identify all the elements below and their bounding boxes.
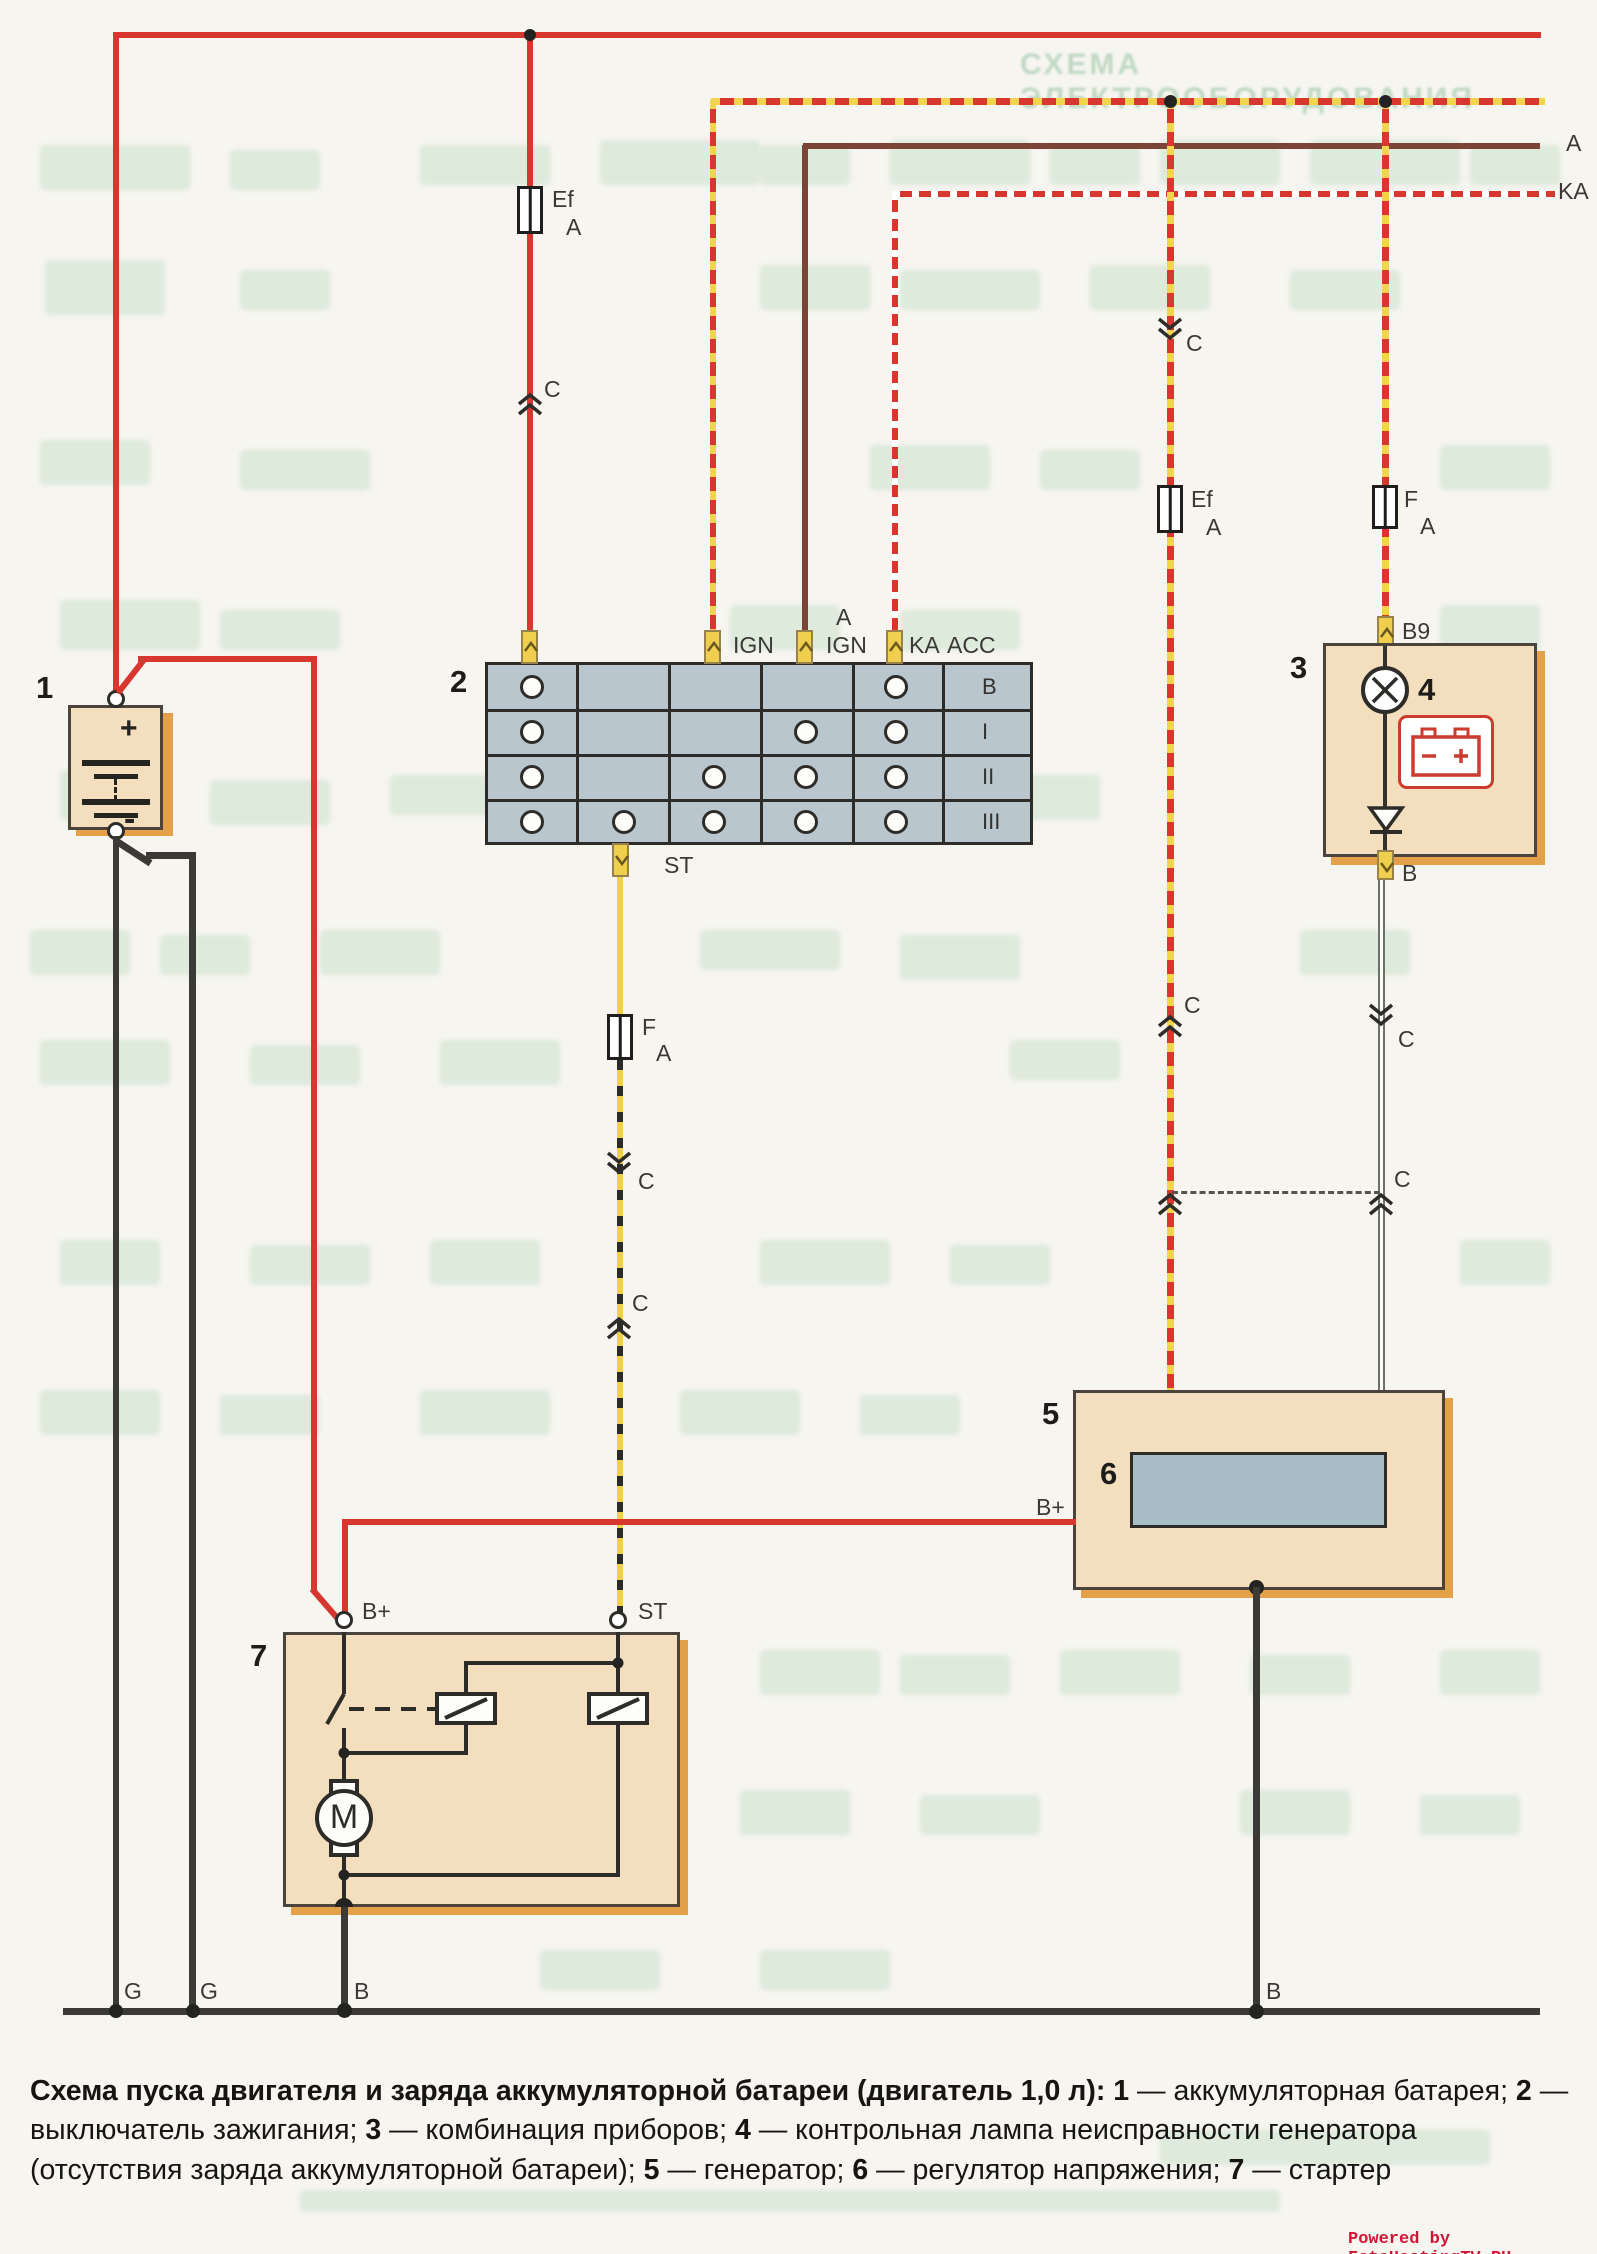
connector-chevron-icon — [1367, 1192, 1395, 1218]
connector-link-dashed — [1172, 1191, 1380, 1194]
connector-c-label: C — [1394, 1166, 1411, 1193]
fuse-ef-icon — [517, 186, 543, 234]
wire-label-ka: KA — [1558, 178, 1589, 205]
connector-c-label: C — [1186, 330, 1203, 357]
terminal-label-ign2: IGN — [826, 632, 867, 659]
switch-contact — [520, 720, 544, 744]
starter-motor-label: M — [324, 1798, 364, 1837]
wire-battery-to-starter — [311, 656, 317, 1590]
wiring-diagram-page: СХЕМА ЭЛЕКТРООБОРУДОВАНИЯ A KA 1 + - Ef … — [0, 0, 1597, 2254]
wire-battery-branch-horizontal — [138, 656, 317, 662]
battery-plate — [82, 799, 150, 805]
cluster-number: 3 — [1290, 650, 1307, 686]
fuse-f2-label: F — [1404, 486, 1418, 513]
starter-terminal-st — [609, 1611, 627, 1629]
switch-terminal-b — [521, 630, 538, 664]
junction-dot — [1249, 2004, 1264, 2019]
generator-number: 5 — [1042, 1396, 1059, 1432]
switch-contact — [884, 675, 908, 699]
wire-ground-1 — [113, 836, 119, 2012]
battery-minus-sign: - — [124, 800, 135, 839]
lamp-number: 4 — [1418, 672, 1435, 708]
switch-contact — [520, 810, 544, 834]
starter-st-label: ST — [638, 1598, 667, 1625]
terminal-label-acc: ACC — [947, 632, 996, 659]
wire-bplus-feed — [344, 1519, 1076, 1525]
switch-contact — [794, 810, 818, 834]
switch-contact — [520, 765, 544, 789]
terminal-label-b: B — [1402, 860, 1417, 887]
junction-dot — [1379, 95, 1392, 108]
switch-contact — [884, 720, 908, 744]
generator-bplus-label: B+ — [1036, 1494, 1065, 1521]
terminal-label-st: ST — [664, 852, 693, 879]
ground-bus — [63, 2008, 1540, 2015]
regulator-number: 6 — [1100, 1456, 1117, 1492]
connector-chevron-icon — [1156, 316, 1184, 342]
switch-position-label: II — [982, 764, 994, 790]
caption-text: Схема пуска двигателя и заряда аккумулят… — [30, 2072, 1575, 2190]
wire-generator-ground — [1253, 1587, 1260, 2012]
regulator-box — [1130, 1452, 1387, 1528]
switch-terminal-st — [612, 843, 629, 877]
starter-number: 7 — [250, 1638, 267, 1674]
wire-bplus-drop — [342, 1519, 348, 1619]
fuse-f-st-label: F — [642, 1014, 656, 1041]
switch-position-label: B — [982, 674, 997, 700]
terminal-label-ign1: IGN — [733, 632, 774, 659]
switch-contact — [794, 765, 818, 789]
fuse-ef2-icon — [1157, 485, 1183, 533]
wire-ka-dashed-bus — [893, 191, 1555, 197]
terminal-label-ka: KA — [909, 632, 940, 659]
wire-dashed-to-cluster — [1382, 100, 1389, 622]
junction-dot — [109, 2004, 123, 2018]
switch-terminal-ka — [886, 630, 903, 664]
starter-internal-circuit — [283, 1632, 680, 1907]
wire-battery-positive-riser — [113, 32, 119, 695]
junction-dot — [1164, 95, 1177, 108]
wire-cluster-to-regulator — [1378, 880, 1385, 1454]
lamp-cross-icon — [1361, 666, 1409, 714]
ignition-switch-box: BIIIIII — [485, 662, 1033, 845]
cluster-terminal-b — [1377, 850, 1394, 880]
wire-ground-2-horizontal — [146, 852, 195, 859]
connector-chevron-icon — [1156, 1192, 1184, 1218]
starter-terminal-bplus — [335, 1611, 353, 1629]
wire-ign-drop — [710, 100, 716, 632]
wire-starter-ground — [341, 1907, 348, 2012]
battery-plate — [82, 760, 150, 766]
terminal-label-b9: B9 — [1402, 618, 1430, 645]
fuse-ef2-amp-label: A — [1206, 514, 1221, 541]
junction-dot — [337, 2003, 352, 2018]
switch-contact — [702, 765, 726, 789]
battery-box — [68, 705, 163, 830]
switch-contact — [884, 810, 908, 834]
ground-label-g1: G — [124, 1978, 142, 2005]
terminal-label-a: A — [836, 604, 851, 631]
connector-chevron-icon — [605, 1316, 633, 1342]
fuse-f-st-icon — [607, 1014, 633, 1060]
wire-dashed-to-regulator — [1167, 100, 1174, 1454]
switch-contact — [794, 720, 818, 744]
switch-terminal-ign2 — [796, 630, 813, 664]
battery-cell-divider — [114, 779, 117, 801]
switch-position-label: I — [982, 719, 988, 745]
connector-chevron-icon — [1156, 1014, 1184, 1040]
wire-a-drop — [802, 145, 808, 632]
wire-battery-positive-bus — [113, 32, 1541, 38]
battery-positive-terminal — [107, 690, 125, 708]
wire-ground-2 — [189, 852, 196, 2012]
connector-c-label: C — [632, 1290, 649, 1317]
junction-dot — [524, 29, 536, 41]
connector-c-label: C — [544, 376, 561, 403]
switch-number: 2 — [450, 664, 467, 700]
fuse-f-st-amp-label: A — [656, 1040, 671, 1067]
fuse-f2-amp-label: A — [1420, 513, 1435, 540]
ground-label-g2: G — [200, 1978, 218, 2005]
switch-position-label: III — [982, 809, 1000, 835]
wire-fused-feed-to-switch — [527, 35, 533, 635]
fuse-ef-amp-label: A — [566, 214, 581, 241]
battery-number: 1 — [36, 670, 53, 706]
connector-chevron-icon — [605, 1150, 633, 1176]
battery-telltale-glyph-icon — [1398, 715, 1494, 789]
junction-dot — [186, 2004, 200, 2018]
fuse-ef2-label: Ef — [1191, 486, 1213, 513]
connector-c-label: C — [638, 1168, 655, 1195]
wire-ign-dashed-bus — [711, 98, 1545, 105]
ghost-title-text: СХЕМА ЭЛЕКТРООБОРУДОВАНИЯ — [1020, 48, 1597, 116]
ground-label-b-generator: B — [1266, 1978, 1281, 2005]
wire-battery-branch-diagonal — [116, 658, 147, 695]
diode-icon — [1366, 804, 1406, 840]
switch-contact — [520, 675, 544, 699]
switch-contact — [884, 765, 908, 789]
ground-label-b-starter: B — [354, 1978, 369, 2005]
wire-ka-drop — [892, 193, 898, 632]
switch-contact — [612, 810, 636, 834]
starter-bplus-label: B+ — [362, 1598, 391, 1625]
connector-chevron-icon — [516, 392, 544, 418]
wire-st-yellow — [617, 877, 623, 1016]
wire-label-a: A — [1566, 130, 1581, 157]
watermark-text: Powered by FotoHostingTV.RU — [1348, 2230, 1597, 2254]
fuse-f2-icon — [1372, 485, 1398, 529]
battery-plus-sign: + — [120, 712, 138, 746]
connector-c-label: C — [1398, 1026, 1415, 1053]
fuse-ef-label: Ef — [552, 186, 574, 213]
switch-contact — [702, 810, 726, 834]
switch-terminal-ign1 — [704, 630, 721, 664]
connector-chevron-icon — [1367, 1002, 1395, 1028]
connector-c-label: C — [1184, 992, 1201, 1019]
